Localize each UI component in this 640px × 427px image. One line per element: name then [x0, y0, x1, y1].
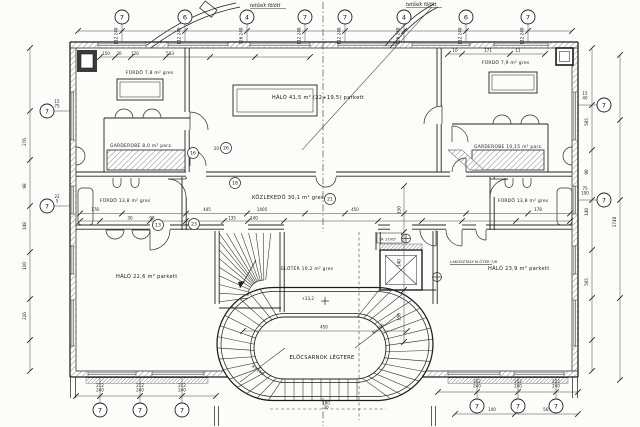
svg-text:148: 148 [22, 222, 27, 230]
svg-text:140: 140 [488, 407, 496, 412]
svg-text:112 240: 112 240 [297, 27, 302, 44]
room-label-furdo-top-right: FÜRDŐ 7,9 m² gres [482, 59, 530, 66]
svg-text:30: 30 [116, 51, 122, 56]
wardrobe-left [107, 150, 185, 170]
svg-text:7: 7 [98, 406, 102, 414]
svg-text:7: 7 [45, 202, 49, 210]
svg-text:98: 98 [149, 215, 155, 220]
room-label-halo-top: HÁLÓ 41,5 m² (22+19,5) parkett [272, 94, 364, 101]
svg-text:10: 10 [452, 48, 458, 53]
roof-note-right: tetősík fölött [406, 1, 438, 8]
floor-plan-page: 150301205831017111112 240112 240126 2401… [0, 0, 640, 427]
room-label-garderobe-right: GARDEROBE 10,15 m² parz. [474, 144, 543, 150]
svg-text:126 240: 126 240 [239, 27, 244, 44]
svg-text:112 240: 112 240 [337, 27, 342, 44]
svg-text:6: 6 [183, 13, 187, 21]
svg-text:98: 98 [22, 183, 27, 189]
section-cut-line [302, 7, 432, 150]
doors [150, 106, 508, 250]
svg-text:140: 140 [397, 259, 402, 267]
svg-text:13: 13 [155, 223, 161, 229]
room-label-halo-bottom-right: HÁLÓ 23,9 m² parkett [488, 265, 550, 272]
wardrobe-right [472, 150, 544, 170]
room-label-garderobe-left: GARDEROBE 8,0 m² parz. [110, 143, 173, 149]
svg-text:1740: 1740 [612, 216, 617, 227]
svg-text:4: 4 [402, 13, 406, 21]
svg-text:112 240: 112 240 [520, 27, 525, 44]
svg-text:23: 23 [191, 222, 197, 228]
svg-text:445: 445 [203, 207, 211, 212]
svg-text:7: 7 [554, 402, 558, 410]
chimney-shaft-right [556, 48, 573, 65]
room-label-furdo-mid-left: FÜRDŐ 13,8 m² gres [100, 197, 151, 204]
svg-text:7: 7 [138, 406, 142, 414]
svg-text:112 240: 112 240 [114, 27, 119, 44]
svg-text:7: 7 [343, 13, 347, 21]
roof-note-left: tetősík fölött [250, 2, 282, 9]
roof-arc-lines [147, 1, 438, 150]
svg-text:140: 140 [584, 208, 589, 216]
svg-text:7: 7 [602, 101, 606, 109]
room-label-furdo-mid-right: FÜRDŐ 13,8 m² gres [498, 197, 549, 204]
svg-text:20: 20 [214, 146, 220, 151]
room-label-furdo-top-left: FÜRDŐ 7,8 m² gres [126, 69, 174, 76]
svg-text:450: 450 [351, 207, 359, 212]
svg-text:18: 18 [232, 181, 238, 187]
svg-text:7: 7 [303, 13, 307, 21]
svg-text:171: 171 [484, 48, 492, 53]
svg-text:30: 30 [127, 215, 133, 220]
svg-text:16: 16 [190, 151, 196, 157]
svg-text:7: 7 [180, 406, 184, 414]
lift-tag-label: TA 17/05 [378, 237, 396, 242]
bathtub-right [557, 188, 572, 225]
svg-text:1540: 1540 [582, 91, 588, 101]
svg-text:4: 4 [245, 13, 249, 21]
svg-text:112 240: 112 240 [177, 27, 182, 44]
room-label-eloter: ELŐTÉR 10,2 m² gres [281, 264, 334, 272]
svg-text:565: 565 [584, 278, 589, 286]
centerlines [323, 2, 359, 426]
roof-detail-box [200, 1, 217, 17]
level-marker [321, 297, 329, 305]
svg-text:1405: 1405 [257, 207, 268, 212]
svg-text:11: 11 [515, 48, 521, 53]
svg-text:583: 583 [166, 51, 174, 56]
svg-text:R=150: R=150 [251, 364, 265, 377]
svg-text:140: 140 [250, 215, 258, 220]
svg-text:7: 7 [45, 107, 49, 115]
svg-text:26: 26 [223, 146, 229, 152]
svg-text:178: 178 [534, 207, 542, 212]
svg-text:276: 276 [22, 138, 27, 146]
svg-text:225: 225 [54, 194, 60, 204]
svg-text:75100: 75100 [581, 186, 589, 196]
svg-text:21: 21 [327, 197, 333, 203]
wall-hatch-bands [70, 43, 578, 384]
room-label-halo-bottom-left: HÁLÓ 22,6 m² parkett [116, 273, 178, 280]
svg-text:120: 120 [131, 51, 139, 56]
room-label-elocsarnok: ELŐCSARNOK LÉGTERE [289, 353, 354, 361]
svg-text:7: 7 [475, 402, 479, 410]
svg-text:150: 150 [102, 51, 110, 56]
svg-text:450: 450 [320, 325, 328, 330]
suite-note-label: LAKOSZTÁLY ELŐTÉR 7/6 [450, 259, 498, 264]
svg-text:178: 178 [91, 207, 99, 212]
svg-text:7: 7 [602, 196, 606, 204]
svg-text:7: 7 [516, 402, 520, 410]
svg-text:1575: 1575 [54, 99, 60, 109]
svg-text:585: 585 [584, 118, 589, 126]
svg-text:226: 226 [22, 312, 27, 320]
interior-walls [76, 48, 572, 312]
svg-text:7: 7 [526, 13, 530, 21]
svg-text:30: 30 [323, 405, 329, 410]
svg-text:90: 90 [584, 169, 589, 175]
svg-text:150: 150 [397, 313, 402, 321]
svg-text:7: 7 [120, 13, 124, 21]
svg-text:150: 150 [397, 206, 402, 214]
radius-line-left [240, 348, 285, 382]
room-label-kozlekedo: KÖZLEKEDŐ 30,1 m² gres [252, 194, 324, 201]
svg-text:6: 6 [464, 13, 468, 21]
elevator [377, 233, 442, 290]
floor-plan-drawing: 150301205831017111112 240112 240126 2401… [0, 0, 640, 427]
svg-text:135: 135 [228, 215, 236, 220]
svg-text:+13,2: +13,2 [301, 296, 314, 301]
shafts [77, 48, 573, 72]
svg-text:110: 110 [22, 262, 27, 270]
svg-text:112 240: 112 240 [458, 27, 463, 44]
svg-text:126 240: 126 240 [396, 27, 401, 44]
